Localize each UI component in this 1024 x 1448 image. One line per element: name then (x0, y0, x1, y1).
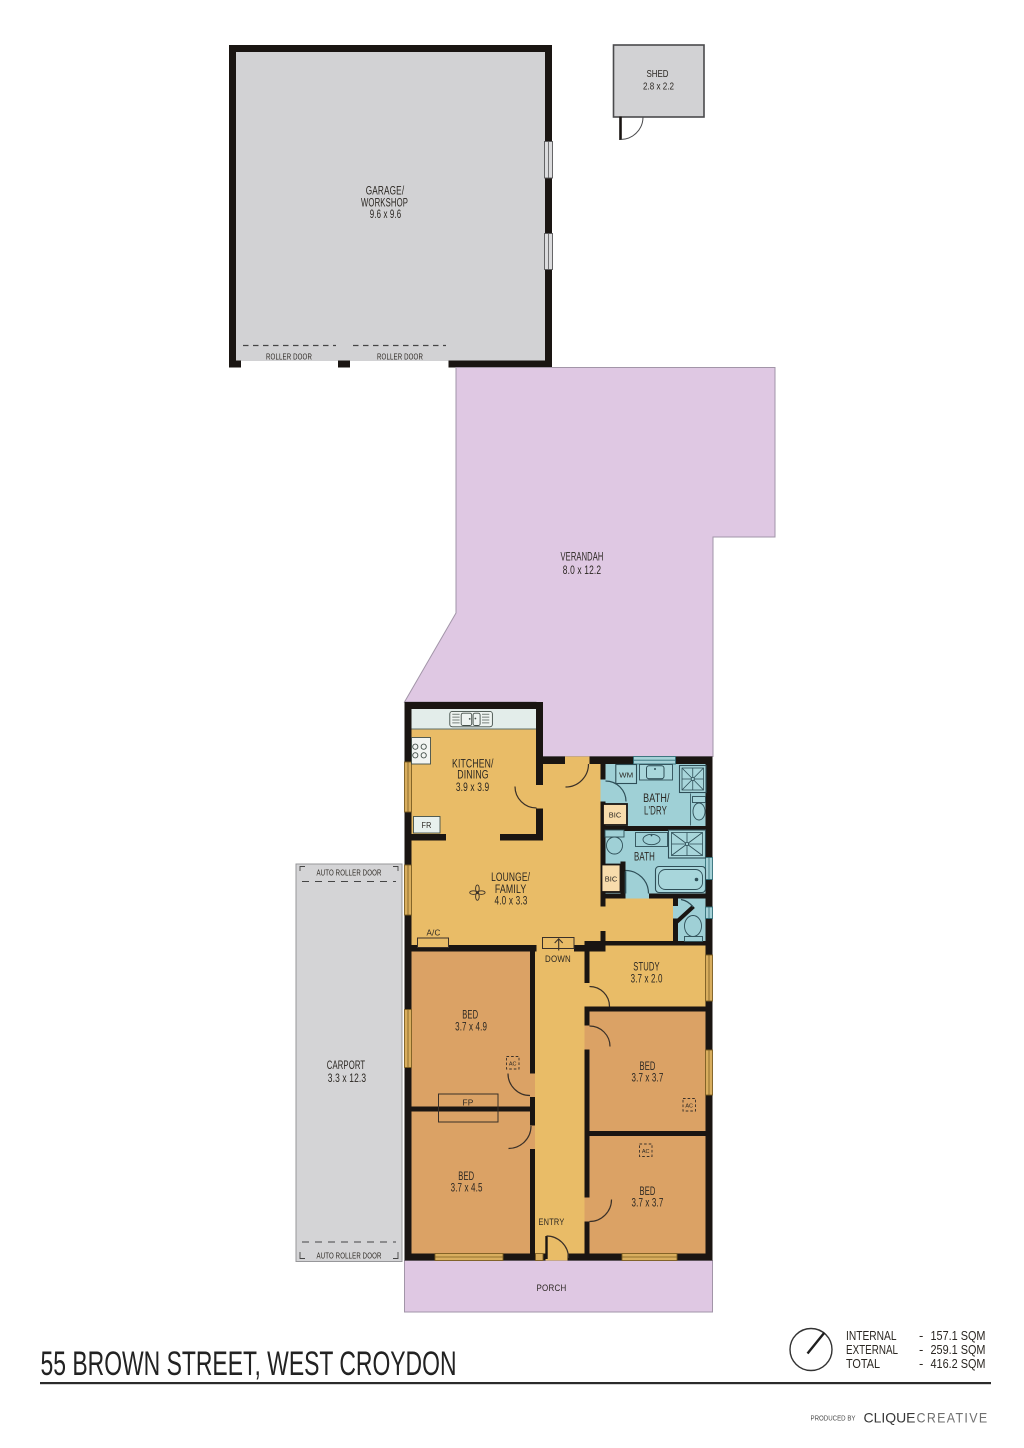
svg-text:3.7 x 3.7: 3.7 x 3.7 (632, 1198, 664, 1210)
svg-text:3.7 x 2.0: 3.7 x 2.0 (631, 974, 663, 986)
svg-text:BIC: BIC (605, 875, 618, 884)
svg-text:4.0 x 3.3: 4.0 x 3.3 (495, 896, 528, 908)
svg-text:LOUNGE/: LOUNGE/ (491, 872, 530, 884)
svg-text:BED: BED (462, 1010, 478, 1022)
svg-text:AC: AC (642, 1149, 650, 1155)
svg-text:-: - (919, 1342, 923, 1357)
svg-text:CLIQUE: CLIQUE (864, 1410, 916, 1426)
svg-text:INTERNAL: INTERNAL (846, 1328, 897, 1343)
svg-text:9.6 x 9.6: 9.6 x 9.6 (370, 209, 402, 221)
svg-text:157.1 SQM: 157.1 SQM (931, 1328, 986, 1343)
svg-text:A/C: A/C (427, 928, 441, 938)
svg-text:PRODUCED BY: PRODUCED BY (811, 1416, 856, 1423)
svg-text:FP: FP (463, 1098, 474, 1108)
svg-text:ROLLER DOOR: ROLLER DOOR (377, 352, 423, 362)
svg-text:ENTRY: ENTRY (539, 1217, 565, 1228)
svg-text:2.8 x 2.2: 2.8 x 2.2 (643, 81, 674, 93)
svg-text:416.2 SQM: 416.2 SQM (931, 1356, 986, 1371)
svg-text:-: - (919, 1328, 923, 1343)
svg-text:55 BROWN STREET, WEST CROYDON: 55 BROWN STREET, WEST CROYDON (41, 1345, 457, 1383)
svg-text:WM: WM (619, 771, 633, 780)
svg-text:3.3 x 12.3: 3.3 x 12.3 (328, 1073, 367, 1085)
svg-text:BATH: BATH (634, 852, 655, 864)
svg-text:PORCH: PORCH (537, 1283, 567, 1294)
svg-text:AUTO ROLLER DOOR: AUTO ROLLER DOOR (317, 868, 382, 878)
svg-text:SHED: SHED (647, 68, 669, 80)
svg-text:AC: AC (685, 1103, 693, 1109)
svg-text:8.0 x 12.2: 8.0 x 12.2 (563, 565, 602, 577)
svg-text:CREATIVE: CREATIVE (917, 1410, 989, 1426)
svg-text:259.1 SQM: 259.1 SQM (931, 1342, 986, 1357)
svg-text:AUTO ROLLER DOOR: AUTO ROLLER DOOR (317, 1251, 382, 1261)
svg-text:STUDY: STUDY (633, 962, 660, 974)
svg-text:BIC: BIC (609, 811, 622, 820)
svg-text:BED: BED (458, 1171, 474, 1183)
svg-text:3.9 x 3.9: 3.9 x 3.9 (456, 782, 490, 794)
svg-text:VERANDAH: VERANDAH (561, 552, 604, 564)
svg-text:AC: AC (509, 1061, 517, 1067)
svg-text:BATH/: BATH/ (643, 793, 670, 805)
svg-text:BED: BED (640, 1186, 656, 1198)
svg-text:DOWN: DOWN (545, 954, 571, 965)
svg-text:-: - (919, 1356, 923, 1371)
svg-text:3.7 x 4.5: 3.7 x 4.5 (451, 1183, 483, 1195)
svg-text:L'DRY: L'DRY (644, 806, 667, 818)
svg-text:TOTAL: TOTAL (846, 1356, 880, 1371)
svg-text:BED: BED (640, 1061, 656, 1073)
svg-text:FAMILY: FAMILY (495, 884, 527, 896)
svg-text:ROLLER DOOR: ROLLER DOOR (266, 352, 312, 362)
svg-text:3.7 x 4.9: 3.7 x 4.9 (455, 1022, 487, 1034)
svg-text:DINING: DINING (457, 770, 489, 782)
svg-text:WORKSHOP: WORKSHOP (361, 198, 408, 210)
svg-text:GARAGE/: GARAGE/ (366, 186, 405, 198)
svg-text:3.7 x 3.7: 3.7 x 3.7 (632, 1073, 664, 1085)
svg-text:EXTERNAL: EXTERNAL (846, 1342, 898, 1357)
svg-text:CARPORT: CARPORT (327, 1060, 366, 1072)
svg-text:FR: FR (422, 820, 432, 830)
